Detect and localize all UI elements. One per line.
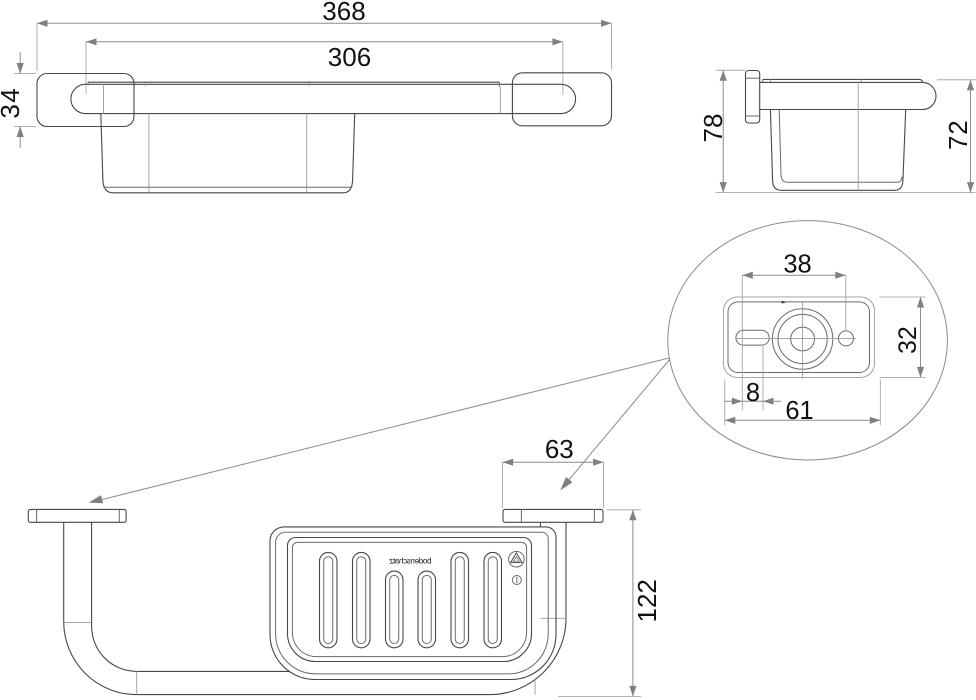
svg-text:bodenschatz: bodenschatz	[389, 557, 431, 566]
svg-text:32: 32	[894, 326, 922, 354]
svg-text:34: 34	[0, 87, 25, 119]
svg-text:61: 61	[785, 397, 813, 425]
svg-text:122: 122	[632, 579, 662, 622]
svg-text:38: 38	[783, 250, 811, 278]
svg-text:8: 8	[746, 379, 760, 407]
svg-text:72: 72	[943, 119, 973, 150]
svg-text:306: 306	[328, 42, 371, 72]
svg-text:63: 63	[545, 434, 574, 464]
svg-text:368: 368	[322, 0, 365, 26]
svg-text:78: 78	[698, 114, 728, 143]
